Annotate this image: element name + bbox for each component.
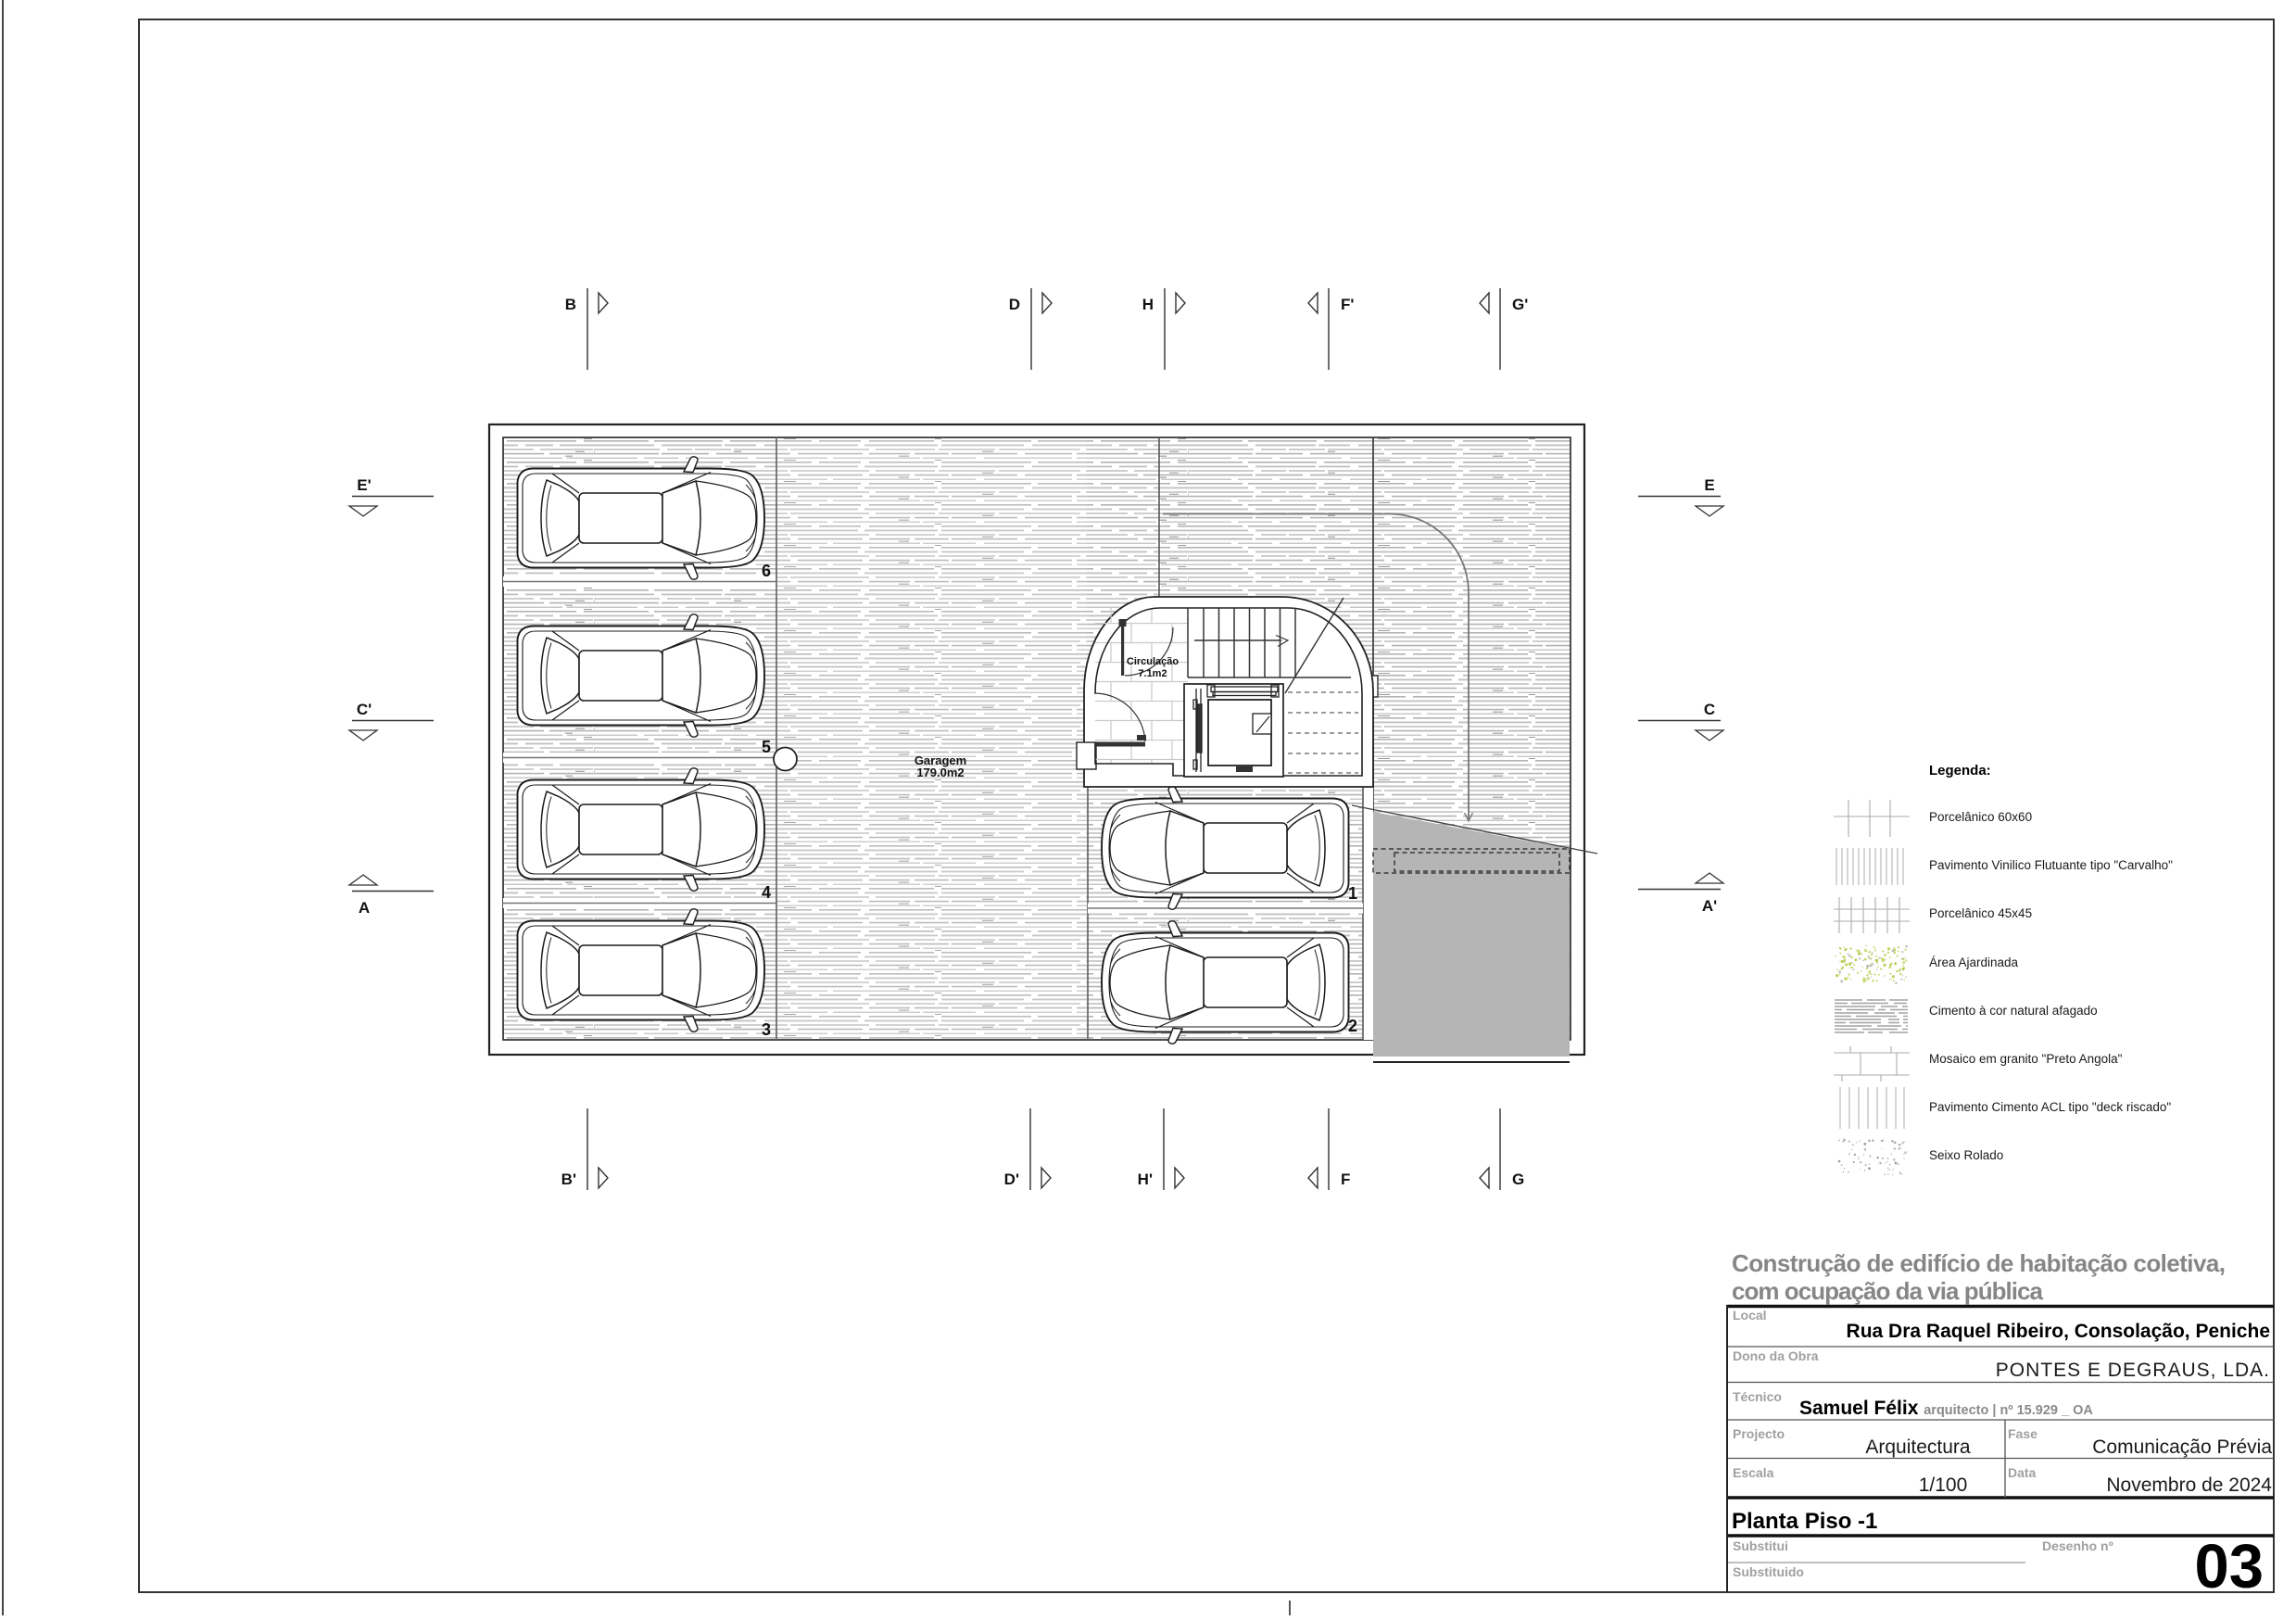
svg-text:A: A — [359, 899, 370, 917]
svg-text:G: G — [1512, 1171, 1524, 1188]
svg-text:3: 3 — [762, 1020, 771, 1039]
svg-text:Substituido: Substituido — [1733, 1564, 1804, 1579]
svg-text:Dono da Obra: Dono da Obra — [1733, 1348, 1819, 1363]
svg-text:D: D — [1009, 296, 1020, 313]
svg-text:4: 4 — [762, 883, 771, 902]
svg-text:Mosaico em granito "Preto Ango: Mosaico em granito "Preto Angola" — [1929, 1052, 2123, 1066]
svg-text:Construção de edifício de habi: Construção de edifício de habitação cole… — [1732, 1249, 2226, 1277]
svg-text:Arquitectura: Arquitectura — [1865, 1436, 1971, 1458]
svg-text:Pavimento Vinilico Flutuante t: Pavimento Vinilico Flutuante tipo "Carva… — [1929, 858, 2173, 872]
svg-text:D': D' — [1004, 1171, 1019, 1188]
svg-text:Projecto: Projecto — [1733, 1426, 1785, 1441]
svg-text:Circulação: Circulação — [1127, 656, 1180, 667]
svg-text:Técnico: Técnico — [1733, 1389, 1782, 1404]
svg-text:Legenda:: Legenda: — [1929, 763, 1991, 778]
svg-text:Porcelânico 60x60: Porcelânico 60x60 — [1929, 810, 2032, 824]
svg-text:2: 2 — [1348, 1017, 1357, 1035]
svg-text:7.1m2: 7.1m2 — [1138, 668, 1167, 679]
svg-text:PONTES E DEGRAUS, LDA.: PONTES E DEGRAUS, LDA. — [1996, 1360, 2270, 1381]
svg-text:B: B — [565, 296, 576, 313]
svg-text:Escala: Escala — [1733, 1465, 1774, 1480]
svg-text:Planta Piso -1: Planta Piso -1 — [1732, 1509, 1877, 1534]
svg-text:1: 1 — [1348, 884, 1357, 903]
svg-text:5: 5 — [762, 738, 771, 756]
svg-text:179.0m2: 179.0m2 — [916, 766, 964, 779]
svg-text:Rua Dra Raquel Ribeiro, Consol: Rua Dra Raquel Ribeiro, Consolação, Peni… — [1847, 1321, 2270, 1342]
svg-text:F: F — [1341, 1171, 1350, 1188]
svg-text:C: C — [1704, 701, 1715, 718]
svg-text:Comunicação Prévia: Comunicação Prévia — [2092, 1436, 2272, 1458]
svg-text:Novembro de 2024: Novembro de 2024 — [2106, 1474, 2272, 1496]
svg-text:Porcelânico 45x45: Porcelânico 45x45 — [1929, 906, 2032, 920]
svg-text:F': F' — [1341, 296, 1354, 313]
svg-text:E: E — [1704, 476, 1714, 494]
svg-text:Fase: Fase — [2008, 1426, 2037, 1441]
svg-text:H: H — [1142, 296, 1154, 313]
svg-text:Data: Data — [2008, 1465, 2037, 1480]
svg-text:Pavimento Cimento ACL tipo "de: Pavimento Cimento ACL tipo "deck riscado… — [1929, 1100, 2171, 1114]
svg-text:Cimento à cor natural afagado: Cimento à cor natural afagado — [1929, 1004, 2098, 1018]
svg-text:C': C' — [357, 701, 372, 718]
svg-text:Área Ajardinada: Área Ajardinada — [1929, 956, 2019, 969]
svg-text:03: 03 — [2194, 1532, 2264, 1601]
svg-text:H': H' — [1138, 1171, 1153, 1188]
svg-text:6: 6 — [762, 562, 771, 580]
svg-text:B': B' — [561, 1171, 576, 1188]
svg-text:G': G' — [1512, 296, 1528, 313]
svg-text:E': E' — [357, 476, 371, 494]
svg-text:com ocupação da via pública: com ocupação da via pública — [1732, 1277, 2044, 1305]
svg-text:1/100: 1/100 — [1919, 1474, 1968, 1496]
svg-text:Substitui: Substitui — [1733, 1538, 1788, 1553]
svg-text:Desenho nº: Desenho nº — [2042, 1538, 2113, 1553]
svg-text:Local: Local — [1733, 1308, 1767, 1323]
svg-text:Seixo Rolado: Seixo Rolado — [1929, 1148, 2003, 1162]
svg-text:A': A' — [1702, 897, 1717, 915]
